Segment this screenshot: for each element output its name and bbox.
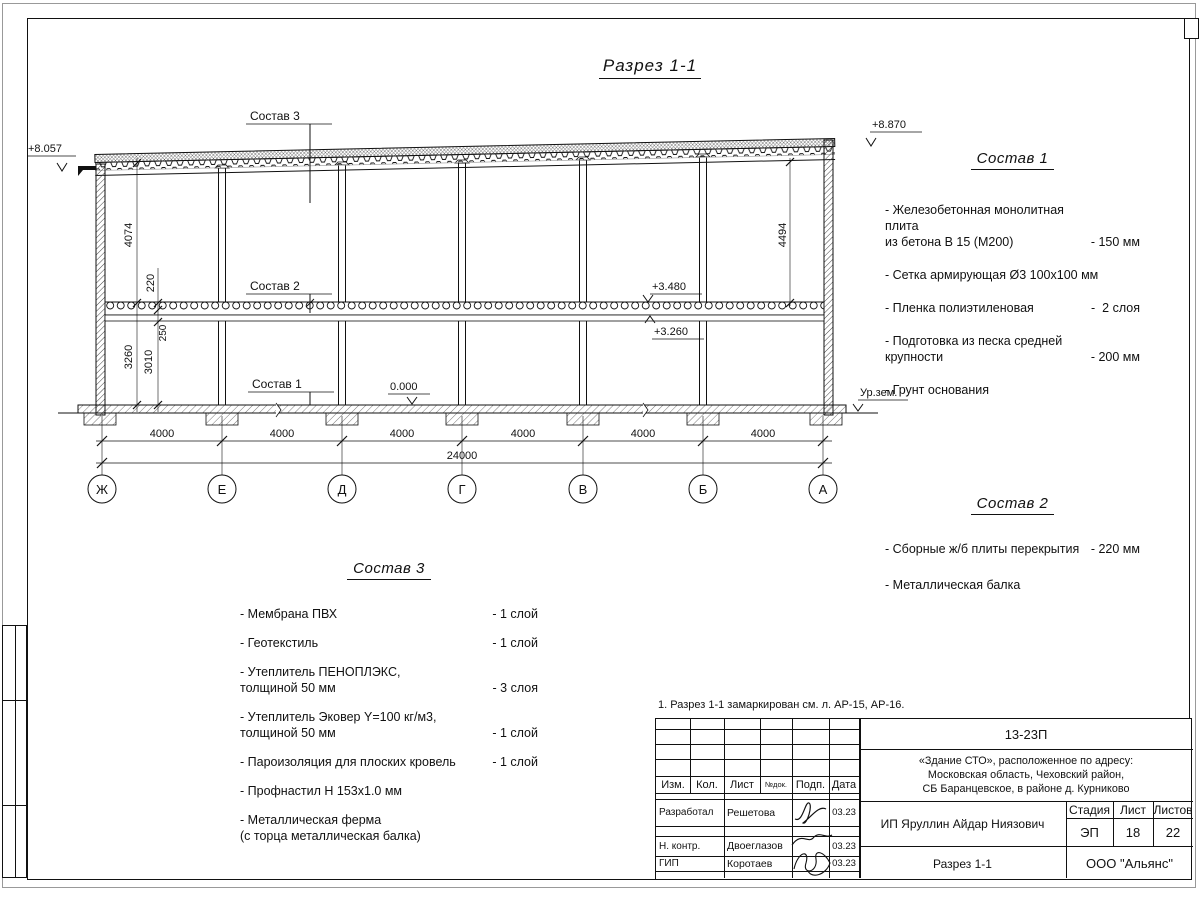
- axis-label-4: В: [579, 482, 588, 497]
- material-item: - Подготовка из песка средней крупности-…: [885, 333, 1140, 365]
- material-name: - Пленка полиэтиленовая: [885, 300, 1083, 316]
- stamp-header-izm: Изм.: [656, 776, 690, 793]
- elevation-roof-left: +8.057: [28, 143, 62, 155]
- drawing-sheet: Разрез 1-1: [0, 0, 1200, 900]
- stamp-doc-title: Разрез 1-1: [859, 846, 1066, 881]
- stamp-client: ИП Яруллин Айдар Ниязович: [859, 801, 1066, 846]
- axis-bubbles: Ж Е Д Г В Б А: [88, 475, 837, 503]
- material-name: - Грунт основания: [885, 382, 1132, 398]
- grid-line: [656, 744, 859, 745]
- dim-bay-3: 4000: [390, 428, 414, 440]
- dim-bay-1: 4000: [150, 428, 174, 440]
- ground-floor: [58, 403, 878, 425]
- material-value: - 220 мм: [1091, 541, 1140, 557]
- title-block: Изм. Кол. Лист №док. Подп. Дата Разработ…: [655, 718, 1192, 880]
- dim-4074: 4074: [123, 223, 135, 247]
- sostav2-block: Состав 2 - Сборные ж/б плиты перекрытия-…: [885, 495, 1140, 593]
- material-item: - Профнастил Н 153х1.0 мм: [240, 783, 538, 799]
- material-value: - 1 слой: [492, 754, 538, 770]
- top-right-code-box: [1184, 18, 1199, 39]
- left-gutter: [78, 166, 96, 176]
- sostav1-block: Состав 1 - Железобетонная монолитная пли…: [885, 150, 1140, 398]
- stamp-stage-label: Стадия: [1066, 801, 1113, 818]
- material-value: - 3 слоя: [493, 680, 538, 696]
- material-value: - 200 мм: [1091, 349, 1140, 365]
- margin-box-divider: [15, 625, 16, 878]
- leader-sostav2: Состав 2: [250, 279, 300, 293]
- dim-250: 250: [158, 324, 169, 341]
- material-item: - Утеплитель ПЕНОПЛЭКС, толщиной 50 мм- …: [240, 664, 538, 696]
- material-item: - Утеплитель Эковер Y=100 кг/м3, толщино…: [240, 709, 538, 741]
- grid-line: [656, 793, 859, 794]
- stamp-header-ndok: №док.: [760, 776, 792, 793]
- sheet-note: 1. Разрез 1-1 замаркирован см. л. АР-15,…: [658, 699, 1078, 711]
- stamp-role-1: Н. контр.: [656, 836, 724, 856]
- material-name: - Сетка армирующая Ø3 100х100 мм: [885, 267, 1132, 283]
- stamp-header-list: Лист: [724, 776, 760, 793]
- stamp-date-0: 03.23: [829, 799, 859, 826]
- stamp-header-kol: Кол.: [690, 776, 724, 793]
- axis-label-1: Е: [218, 482, 227, 497]
- stamp-stage-value: ЭП: [1066, 818, 1113, 846]
- material-name: - Металлическая ферма (с торца металличе…: [240, 812, 530, 844]
- stamp-sheet-number: 18: [1113, 818, 1153, 846]
- stamp-sheet-label: Лист: [1113, 801, 1153, 818]
- stamp-doc-code: 13-23П: [859, 719, 1193, 749]
- axis-label-5: Б: [699, 482, 708, 497]
- stamp-name-1: Двоеглазов: [724, 836, 792, 856]
- material-name: - Железобетонная монолитная плита из бет…: [885, 202, 1083, 250]
- elevation-roof-right: +8.870: [872, 119, 906, 131]
- sostav2-list: - Сборные ж/б плиты перекрытия- 220 мм -…: [885, 541, 1140, 593]
- dim-bay-5: 4000: [631, 428, 655, 440]
- material-item: - Металлическая балка: [885, 577, 1140, 593]
- stamp-role-2: ГИП: [656, 856, 724, 871]
- sostav2-title: Состав 2: [885, 495, 1140, 515]
- material-value: - 2 слоя: [1091, 300, 1140, 316]
- dim-bay-6: 4000: [751, 428, 775, 440]
- material-name: - Мембрана ПВХ: [240, 606, 484, 622]
- material-item: - Геотекстиль- 1 слой: [240, 635, 538, 651]
- dim-bay-4: 4000: [511, 428, 535, 440]
- material-name: - Сборные ж/б плиты перекрытия: [885, 541, 1083, 557]
- dim-3260: 3260: [123, 345, 135, 369]
- grid-line: [656, 759, 859, 760]
- material-name: - Подготовка из песка средней крупности: [885, 333, 1083, 365]
- elevation-slab-top: +3.480: [652, 281, 686, 293]
- sostav1-list: - Железобетонная монолитная плита из бет…: [885, 202, 1140, 398]
- floor-slab: [105, 302, 824, 321]
- material-name: - Пароизоляция для плоских кровель: [240, 754, 484, 770]
- material-name: - Утеплитель ПЕНОПЛЭКС, толщиной 50 мм: [240, 664, 485, 696]
- material-item: - Сетка армирующая Ø3 100х100 мм: [885, 267, 1140, 283]
- stamp-company: ООО "Альянс": [1066, 846, 1193, 881]
- stamp-sheets-total: 22: [1153, 818, 1193, 846]
- stamp-name-0: Решетова: [724, 799, 792, 826]
- material-name: - Профнастил Н 153х1.0 мм: [240, 783, 530, 799]
- material-value: - 1 слой: [492, 725, 538, 741]
- stamp-header-podp: Подп.: [792, 776, 829, 793]
- material-value: - 150 мм: [1091, 234, 1140, 250]
- stamp-project: «Здание СТО», расположенное по адресу: М…: [859, 749, 1193, 801]
- sostav3-block: Состав 3 - Мембрана ПВХ- 1 слой - Геотек…: [240, 560, 538, 844]
- sostav1-title: Состав 1: [885, 150, 1140, 170]
- signature-0: [793, 797, 829, 827]
- stamp-role-0: Разработал: [656, 799, 724, 826]
- axis-label-2: Д: [338, 482, 347, 497]
- axis-label-3: Г: [458, 482, 465, 497]
- sostav3-title: Состав 3: [240, 560, 538, 580]
- material-item: - Мембрана ПВХ- 1 слой: [240, 606, 538, 622]
- elevation-floor: 0.000: [390, 381, 418, 393]
- dim-4494: 4494: [777, 223, 789, 247]
- section-drawing: 4074 3260 220 250 3010 4494 +8.057 +8.87…: [0, 0, 940, 530]
- elevation-ceiling: +3.260: [654, 326, 688, 338]
- material-item: - Металлическая ферма (с торца металличе…: [240, 812, 538, 844]
- left-wall: [96, 164, 105, 415]
- dim-bay-2: 4000: [270, 428, 294, 440]
- dim-3010: 3010: [143, 350, 155, 374]
- leader-sostav1: Состав 1: [252, 377, 302, 391]
- material-item: - Железобетонная монолитная плита из бет…: [885, 202, 1140, 250]
- grid-line: [656, 729, 859, 730]
- dim-total: 24000: [447, 450, 478, 462]
- right-wall: [824, 140, 833, 415]
- material-item: - Пленка полиэтиленовая- 2 слоя: [885, 300, 1140, 316]
- stamp-name-2: Коротаев: [724, 856, 792, 871]
- axis-label-6: А: [819, 482, 828, 497]
- dim-220: 220: [145, 274, 157, 292]
- material-item: - Грунт основания: [885, 382, 1140, 398]
- stamp-sheets-label: Листов: [1153, 801, 1193, 818]
- axis-label-0: Ж: [96, 482, 108, 497]
- sostav3-list: - Мембрана ПВХ- 1 слой - Геотекстиль- 1 …: [240, 606, 538, 844]
- material-name: - Утеплитель Эковер Y=100 кг/м3, толщино…: [240, 709, 484, 741]
- signature-1: [790, 829, 834, 879]
- material-value: - 1 слой: [492, 606, 538, 622]
- material-name: - Геотекстиль: [240, 635, 484, 651]
- material-name: - Металлическая балка: [885, 577, 1132, 593]
- material-item: - Пароизоляция для плоских кровель- 1 сл…: [240, 754, 538, 770]
- leader-sostav3: Состав 3: [250, 109, 300, 123]
- material-value: - 1 слой: [492, 635, 538, 651]
- stamp-header-data: Дата: [829, 776, 859, 793]
- material-item: - Сборные ж/б плиты перекрытия- 220 мм: [885, 541, 1140, 557]
